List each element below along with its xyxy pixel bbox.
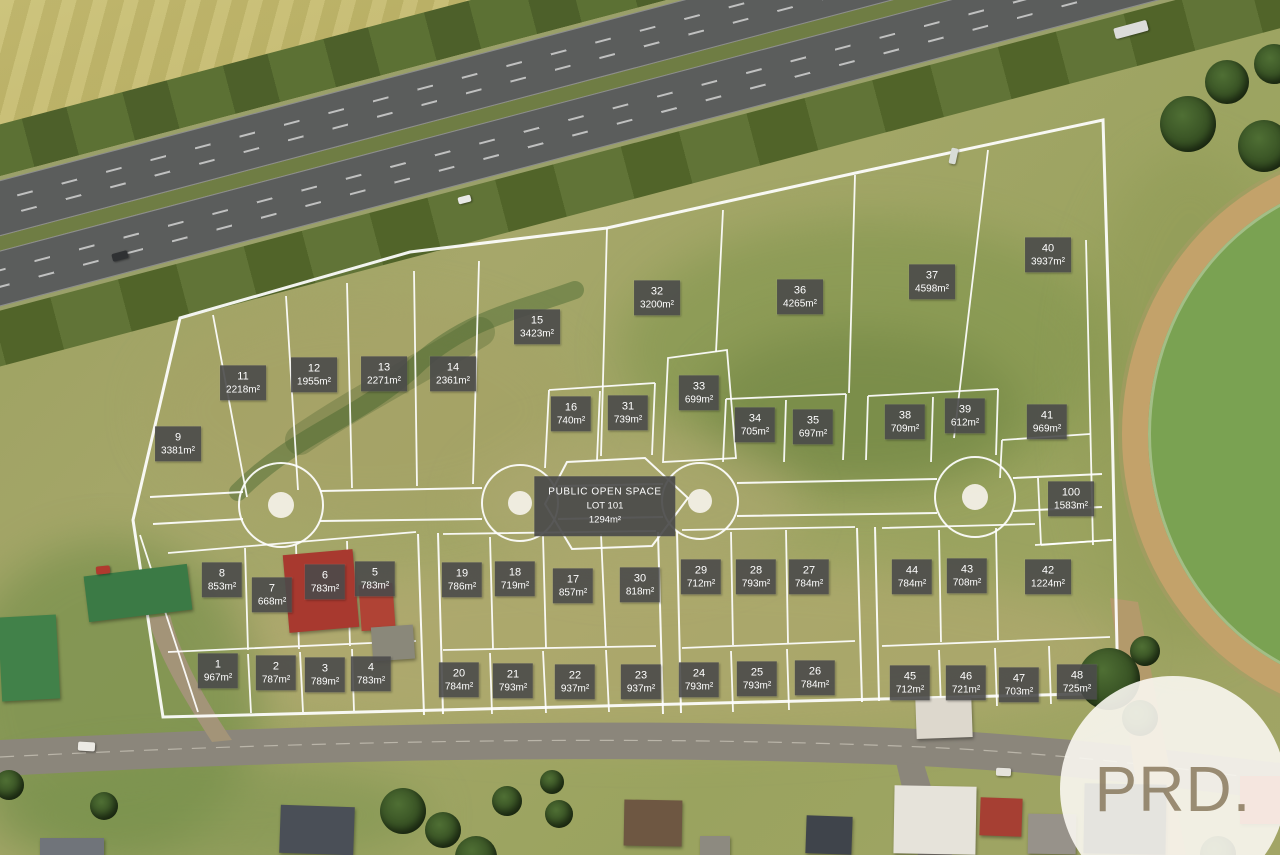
lot-label-3: 3789m² <box>305 657 345 692</box>
lot-label-19: 19786m² <box>442 562 482 597</box>
lot-label-21: 21793m² <box>493 663 533 698</box>
pos-title: PUBLIC OPEN SPACE <box>548 484 661 499</box>
lot-label-28: 28793m² <box>736 559 776 594</box>
lot-label-15: 153423m² <box>514 309 560 344</box>
lot-label-16: 16740m² <box>551 396 591 431</box>
lot-label-8: 8853m² <box>202 562 242 597</box>
lot-label-14: 142361m² <box>430 356 476 391</box>
lot-label-12: 121955m² <box>291 357 337 392</box>
lot-label-35: 35697m² <box>793 409 833 444</box>
lot-label-42: 421224m² <box>1025 559 1071 594</box>
lot-label-40: 403937m² <box>1025 237 1071 272</box>
lot-label-38: 38709m² <box>885 404 925 439</box>
lot-label-36: 364265m² <box>777 279 823 314</box>
lot-label-41: 41969m² <box>1027 404 1067 439</box>
lot-label-47: 47703m² <box>999 667 1039 702</box>
lot-label-34: 34705m² <box>735 407 775 442</box>
lot-label-48: 48725m² <box>1057 664 1097 699</box>
lot-label-17: 17857m² <box>553 568 593 603</box>
lot-label-1: 1967m² <box>198 653 238 688</box>
lot-label-11: 112218m² <box>220 365 266 400</box>
lot-label-7: 7668m² <box>252 577 292 612</box>
lot-label-9: 93381m² <box>155 426 201 461</box>
lot-label-44: 44784m² <box>892 559 932 594</box>
lot-label-43: 43708m² <box>947 558 987 593</box>
lot-label-2: 2787m² <box>256 655 296 690</box>
lot-label-31: 31739m² <box>608 395 648 430</box>
lot-label-23: 23937m² <box>621 664 661 699</box>
pos-lot-number: LOT 101 <box>548 499 661 513</box>
lot-label-39: 39612m² <box>945 398 985 433</box>
lot-label-4: 4783m² <box>351 656 391 691</box>
lot-label-33: 33699m² <box>679 375 719 410</box>
lot-label-37: 374598m² <box>909 264 955 299</box>
lot-label-18: 18719m² <box>495 561 535 596</box>
lot-label-100: 1001583m² <box>1048 481 1094 516</box>
lot-label-22: 22937m² <box>555 664 595 699</box>
lot-label-24: 24793m² <box>679 662 719 697</box>
lot-label-13: 132271m² <box>361 356 407 391</box>
lot-label-32: 323200m² <box>634 280 680 315</box>
lot-label-29: 29712m² <box>681 559 721 594</box>
lot-label-30: 30818m² <box>620 567 660 602</box>
aerial-subdivision-map: 1967m²2787m²3789m²4783m²5783m²6783m²7668… <box>0 0 1280 855</box>
lot-label-6: 6783m² <box>305 564 345 599</box>
lot-label-46: 46721m² <box>946 665 986 700</box>
pos-area: 1294m² <box>548 514 661 528</box>
public-open-space-label: PUBLIC OPEN SPACE LOT 101 1294m² <box>534 476 675 536</box>
lot-label-27: 27784m² <box>789 559 829 594</box>
lot-label-5: 5783m² <box>355 561 395 596</box>
prd-logo-text: PRD. <box>1095 752 1252 826</box>
lot-label-26: 26784m² <box>795 660 835 695</box>
lot-label-20: 20784m² <box>439 662 479 697</box>
lot-label-45: 45712m² <box>890 665 930 700</box>
lot-label-25: 25793m² <box>737 661 777 696</box>
